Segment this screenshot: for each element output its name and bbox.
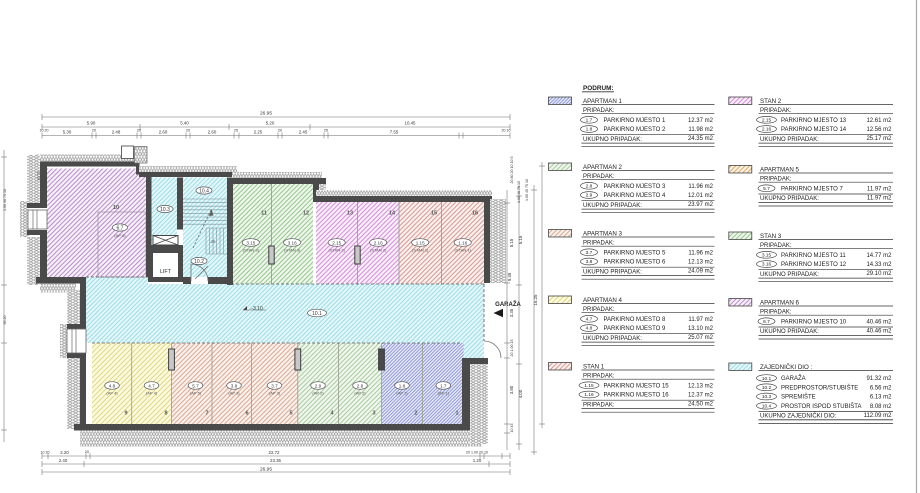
svg-text:STAN 1: STAN 1 [583, 363, 605, 370]
svg-text:10.4: 10.4 [762, 403, 772, 409]
svg-text:PARKIRNO MJESTO 12: PARKIRNO MJESTO 12 [781, 262, 847, 268]
svg-text:1.15: 1.15 [416, 241, 425, 246]
svg-text:PARKIRNO MJESTO 4: PARKIRNO MJESTO 4 [604, 193, 666, 199]
svg-text:2.15: 2.15 [762, 118, 772, 124]
svg-text:22.72: 22.72 [269, 450, 281, 455]
svg-text:APARTMAN 1: APARTMAN 1 [583, 98, 623, 105]
svg-text:24.35 m2: 24.35 m2 [688, 136, 714, 142]
svg-text:3: 3 [372, 411, 375, 417]
svg-text:25.17 m2: 25.17 m2 [866, 136, 892, 142]
svg-text:9: 9 [124, 411, 127, 417]
svg-text:1.8: 1.8 [399, 384, 406, 389]
svg-text:1: 1 [455, 411, 458, 417]
svg-text:PARKIRNO MJESTO 1: PARKIRNO MJESTO 1 [604, 118, 666, 124]
svg-text:(AP 3): (AP 3) [269, 391, 281, 396]
svg-text:45 75: 45 75 [37, 172, 41, 181]
svg-text:1.16: 1.16 [584, 392, 594, 398]
svg-text:7.55: 7.55 [390, 129, 399, 134]
svg-text:16: 16 [472, 211, 478, 217]
svg-text:2.40: 2.40 [59, 458, 68, 463]
svg-text:11.97 m2: 11.97 m2 [867, 195, 892, 201]
svg-text:6.7: 6.7 [763, 319, 770, 325]
svg-text:PRIPADAK:: PRIPADAK: [760, 176, 792, 182]
svg-text:3.8: 3.8 [231, 384, 238, 389]
svg-text:5.7: 5.7 [192, 384, 199, 389]
svg-text:UKUPNO PRIPADAK:: UKUPNO PRIPADAK: [760, 272, 819, 278]
svg-text:24.50 m2: 24.50 m2 [688, 402, 714, 408]
svg-text:(STAN 3): (STAN 3) [284, 248, 301, 253]
svg-text:PARKIRNO MJESTO 2: PARKIRNO MJESTO 2 [604, 127, 666, 133]
svg-text:11.96 m2: 11.96 m2 [688, 184, 713, 190]
svg-text:1.8: 1.8 [586, 127, 593, 133]
svg-text:2.60: 2.60 [208, 129, 217, 134]
svg-text:91.32 m2: 91.32 m2 [866, 376, 892, 382]
svg-text:10 20: 10 20 [41, 451, 50, 455]
svg-text:5: 5 [289, 411, 292, 417]
svg-text:PARKIRNO MJESTO 7: PARKIRNO MJESTO 7 [781, 186, 843, 192]
svg-text:10.1: 10.1 [312, 311, 322, 317]
svg-text:3.7: 3.7 [271, 384, 278, 389]
svg-text:4.8: 4.8 [586, 326, 593, 332]
svg-text:10 45: 10 45 [510, 424, 514, 433]
svg-text:16.25: 16.25 [533, 294, 538, 306]
svg-text:10.2: 10.2 [194, 259, 204, 265]
svg-text:4.00: 4.00 [518, 389, 523, 398]
svg-text:APARTMAN 5: APARTMAN 5 [760, 166, 800, 173]
svg-text:14: 14 [389, 211, 396, 217]
svg-text:20 1.00 20 10: 20 1.00 20 10 [466, 451, 488, 455]
svg-text:20 80 20 10 10 5: 20 80 20 10 10 5 [510, 157, 514, 184]
svg-text:LIFT: LIFT [160, 269, 172, 275]
svg-text:(AP 2): (AP 2) [312, 391, 324, 396]
svg-text:(AP 1): (AP 1) [438, 391, 450, 396]
svg-text:1.00 46 75 10: 1.00 46 75 10 [3, 189, 7, 211]
svg-text:2.45: 2.45 [299, 129, 308, 134]
svg-text:PARKIRNO MJESTO 5: PARKIRNO MJESTO 5 [604, 250, 666, 256]
svg-text:9.45: 9.45 [507, 272, 512, 281]
svg-text:PRIPADAK:: PRIPADAK: [583, 307, 615, 313]
svg-text:2: 2 [414, 411, 417, 417]
svg-text:(AP 1): (AP 1) [396, 391, 408, 396]
svg-text:5.40: 5.40 [180, 121, 189, 126]
svg-text:STAN 3: STAN 3 [760, 233, 782, 240]
svg-text:PRIPADAK:: PRIPADAK: [760, 309, 792, 315]
svg-text:5.7: 5.7 [763, 186, 770, 192]
svg-text:3.7: 3.7 [586, 250, 593, 256]
svg-text:2.15: 2.15 [332, 241, 341, 246]
svg-text:(AP 3): (AP 3) [228, 391, 240, 396]
svg-text:20 1.00 15: 20 1.00 15 [510, 340, 514, 357]
svg-text:20: 20 [186, 129, 190, 133]
svg-text:PARKIRNO MJESTO 11: PARKIRNO MJESTO 11 [781, 253, 846, 259]
svg-text:APARTMAN 4: APARTMAN 4 [583, 297, 623, 304]
svg-text:2.25: 2.25 [254, 129, 263, 134]
svg-text:GARAŽA: GARAŽA [781, 374, 806, 382]
svg-text:PRIPADAK:: PRIPADAK: [583, 402, 615, 408]
svg-text:11: 11 [261, 211, 267, 217]
svg-text:11.97 m2: 11.97 m2 [867, 186, 892, 192]
svg-text:(STAN 2): (STAN 2) [329, 248, 346, 253]
svg-text:PARKIRNO MJESTO 16: PARKIRNO MJESTO 16 [604, 393, 670, 399]
svg-text:20 10: 20 10 [502, 129, 511, 133]
svg-text:2.16: 2.16 [374, 241, 383, 246]
svg-text:3.15: 3.15 [246, 241, 255, 246]
svg-text:PRIPADAK:: PRIPADAK: [760, 108, 792, 114]
svg-text:6: 6 [245, 411, 248, 417]
svg-text:APARTMAN 2: APARTMAN 2 [583, 164, 623, 171]
svg-text:10.3: 10.3 [762, 394, 772, 400]
svg-text:23.97 m2: 23.97 m2 [688, 202, 714, 208]
svg-text:12: 12 [303, 211, 309, 217]
svg-text:2.9: 2.9 [315, 384, 322, 389]
svg-text:5.15: 5.15 [518, 235, 523, 244]
svg-text:PRIPADAK:: PRIPADAK: [583, 240, 615, 246]
svg-text:6.7: 6.7 [117, 226, 124, 232]
svg-text:APARTMAN 3: APARTMAN 3 [583, 230, 623, 237]
svg-text:25: 25 [234, 129, 238, 133]
svg-text:8: 8 [164, 411, 167, 417]
svg-text:7: 7 [205, 411, 208, 417]
svg-text:PARKIRNO MJESTO 6: PARKIRNO MJESTO 6 [604, 260, 666, 266]
svg-text:20: 20 [85, 450, 89, 454]
svg-text:UKUPNO PRIPADAK:: UKUPNO PRIPADAK: [583, 269, 642, 275]
svg-text:20: 20 [92, 129, 96, 133]
svg-text:12.13 m2: 12.13 m2 [688, 260, 714, 266]
svg-text:(AP 4): (AP 4) [106, 391, 118, 396]
svg-text:23.35: 23.35 [270, 458, 282, 463]
svg-text:PARKIRNO MJESTO 8: PARKIRNO MJESTO 8 [604, 317, 666, 323]
svg-text:13: 13 [347, 211, 353, 217]
svg-text:2.60: 2.60 [159, 129, 168, 134]
svg-text:5.15: 5.15 [509, 238, 514, 247]
svg-text:(STAN 1): (STAN 1) [455, 248, 472, 253]
svg-text:(AP 5): (AP 5) [190, 391, 202, 396]
svg-text:PRIPADAK:: PRIPADAK: [760, 243, 792, 249]
svg-text:3.16: 3.16 [288, 241, 297, 246]
svg-text:1.20: 1.20 [473, 458, 482, 463]
svg-text:6.13 m2: 6.13 m2 [870, 395, 892, 401]
svg-text:10: 10 [113, 205, 119, 211]
svg-text:2.20: 2.20 [60, 450, 69, 455]
svg-text:12.13 m2: 12.13 m2 [688, 383, 714, 389]
svg-text:SPREMIŠTE: SPREMIŠTE [781, 394, 816, 401]
svg-text:5.20: 5.20 [266, 121, 275, 126]
svg-text:12.37 m2: 12.37 m2 [688, 393, 714, 399]
svg-text:26.95: 26.95 [260, 111, 272, 117]
svg-text:PARKIRNO MJESTO 3: PARKIRNO MJESTO 3 [604, 184, 666, 190]
svg-text:PROSTOR ISPOD STUBIŠTA: PROSTOR ISPOD STUBIŠTA [781, 403, 861, 410]
svg-text:1.16: 1.16 [458, 241, 467, 246]
svg-text:15: 15 [431, 211, 437, 217]
svg-text:ZAJEDNIČKI DIO :: ZAJEDNIČKI DIO : [760, 364, 813, 371]
svg-text:-3.10: -3.10 [251, 306, 263, 312]
svg-text:2.48: 2.48 [112, 129, 121, 134]
svg-text:3.80: 3.80 [509, 385, 514, 394]
svg-text:112.09 m2: 112.09 m2 [864, 413, 893, 419]
svg-text:14.33 m2: 14.33 m2 [866, 262, 892, 268]
svg-text:(AP 4): (AP 4) [146, 391, 158, 396]
svg-text:12.56 m2: 12.56 m2 [866, 127, 892, 133]
svg-text:3.8: 3.8 [586, 259, 593, 265]
svg-text:14.77 m2: 14.77 m2 [866, 253, 892, 259]
svg-text:UKUPNO ZAJEDNIČKI DIO:: UKUPNO ZAJEDNIČKI DIO: [760, 413, 837, 420]
svg-text:20: 20 [137, 129, 141, 133]
svg-text:40.46 m2: 40.46 m2 [866, 319, 892, 325]
svg-text:12.61 m2: 12.61 m2 [866, 118, 892, 124]
svg-text:24.09 m2: 24.09 m2 [688, 269, 714, 275]
svg-text:11.98 m2: 11.98 m2 [688, 127, 713, 133]
svg-text:1.15: 1.15 [584, 383, 594, 389]
svg-text:1.7: 1.7 [440, 384, 447, 389]
svg-text:20: 20 [278, 129, 282, 133]
svg-text:10.3: 10.3 [160, 207, 170, 213]
svg-text:1.00 46 75 10: 1.00 46 75 10 [517, 181, 521, 203]
svg-text:4.8: 4.8 [109, 384, 116, 389]
svg-text:11.96 m2: 11.96 m2 [688, 250, 713, 256]
svg-text:(STAN 2): (STAN 2) [370, 248, 387, 253]
svg-text:4.7: 4.7 [148, 384, 155, 389]
svg-text:(STAN 1): (STAN 1) [412, 248, 429, 253]
svg-text:12.37 m2: 12.37 m2 [688, 118, 714, 124]
svg-text:2.8: 2.8 [586, 184, 593, 190]
svg-text:3.35: 3.35 [509, 308, 514, 317]
svg-text:2.16: 2.16 [762, 127, 772, 133]
svg-text:3.16: 3.16 [762, 262, 772, 268]
svg-text:UKUPNO PRIPADAK:: UKUPNO PRIPADAK: [760, 137, 819, 143]
svg-text:1.7: 1.7 [586, 118, 593, 124]
svg-text:3.15: 3.15 [762, 253, 772, 259]
svg-text:11.97 m2: 11.97 m2 [688, 317, 713, 323]
svg-text:(STAN 3): (STAN 3) [243, 248, 260, 253]
svg-text:4.7: 4.7 [586, 317, 593, 323]
svg-text:STAN 2: STAN 2 [760, 98, 782, 105]
svg-text:PODRUM:: PODRUM: [583, 85, 614, 92]
svg-text:13.10 m2: 13.10 m2 [688, 326, 714, 332]
svg-text:5.90: 5.90 [87, 121, 96, 126]
svg-text:UKUPNO PRIPADAK:: UKUPNO PRIPADAK: [583, 336, 642, 342]
svg-text:UKUPNO PRIPADAK:: UKUPNO PRIPADAK: [760, 329, 819, 335]
svg-text:(AP 2): (AP 2) [354, 391, 366, 396]
svg-text:10.4: 10.4 [199, 189, 209, 195]
svg-text:PARKIRNO MJESTO 15: PARKIRNO MJESTO 15 [604, 383, 670, 389]
svg-text:GARAŽA: GARAŽA [495, 300, 521, 308]
svg-text:12.01 m2: 12.01 m2 [688, 193, 714, 199]
svg-text:10.2: 10.2 [762, 385, 772, 391]
svg-text:6.56 m2: 6.56 m2 [870, 385, 892, 391]
svg-text:PARKIRNO MJESTO 9: PARKIRNO MJESTO 9 [604, 326, 666, 332]
svg-text:26.95: 26.95 [260, 467, 272, 473]
svg-text:5.30: 5.30 [63, 129, 72, 134]
svg-text:40.46 m2: 40.46 m2 [866, 328, 892, 334]
svg-text:25: 25 [324, 129, 328, 133]
svg-text:UKUPNO PRIPADAK:: UKUPNO PRIPADAK: [760, 196, 819, 202]
svg-text:2.8: 2.8 [357, 384, 364, 389]
svg-text:25.07 m2: 25.07 m2 [688, 335, 714, 341]
svg-text:UKUPNO PRIPADAK:: UKUPNO PRIPADAK: [583, 203, 642, 209]
svg-text:10.1: 10.1 [762, 376, 772, 382]
svg-text:PARKIRNO MJESTO 13: PARKIRNO MJESTO 13 [781, 118, 847, 124]
svg-text:8.08 m2: 8.08 m2 [870, 404, 892, 410]
svg-text:UKUPNO PRIPADAK:: UKUPNO PRIPADAK: [583, 137, 642, 143]
svg-text:10.45: 10.45 [405, 121, 417, 126]
svg-text:2.9: 2.9 [586, 193, 593, 199]
svg-text:PRIPADAK:: PRIPADAK: [583, 108, 615, 114]
svg-text:(AP 6): (AP 6) [114, 233, 126, 238]
svg-text:PREDPROSTOR/STUBIŠTE: PREDPROSTOR/STUBIŠTE [781, 384, 858, 391]
svg-text:2R: 2R [210, 239, 215, 244]
svg-text:1.00 45 75 10: 1.00 45 75 10 [525, 179, 529, 201]
svg-text:PARKIRNO MJESTO 10: PARKIRNO MJESTO 10 [781, 319, 847, 325]
svg-text:95 20: 95 20 [3, 316, 7, 325]
svg-text:PARKIRNO MJESTO 14: PARKIRNO MJESTO 14 [781, 127, 847, 133]
svg-text:PRIPADAK:: PRIPADAK: [583, 373, 615, 379]
svg-text:PRIPADAK:: PRIPADAK: [583, 174, 615, 180]
svg-text:29.10 m2: 29.10 m2 [866, 271, 892, 277]
svg-text:APARTMAN 6: APARTMAN 6 [760, 299, 800, 306]
svg-text:10 20: 10 20 [40, 129, 49, 133]
